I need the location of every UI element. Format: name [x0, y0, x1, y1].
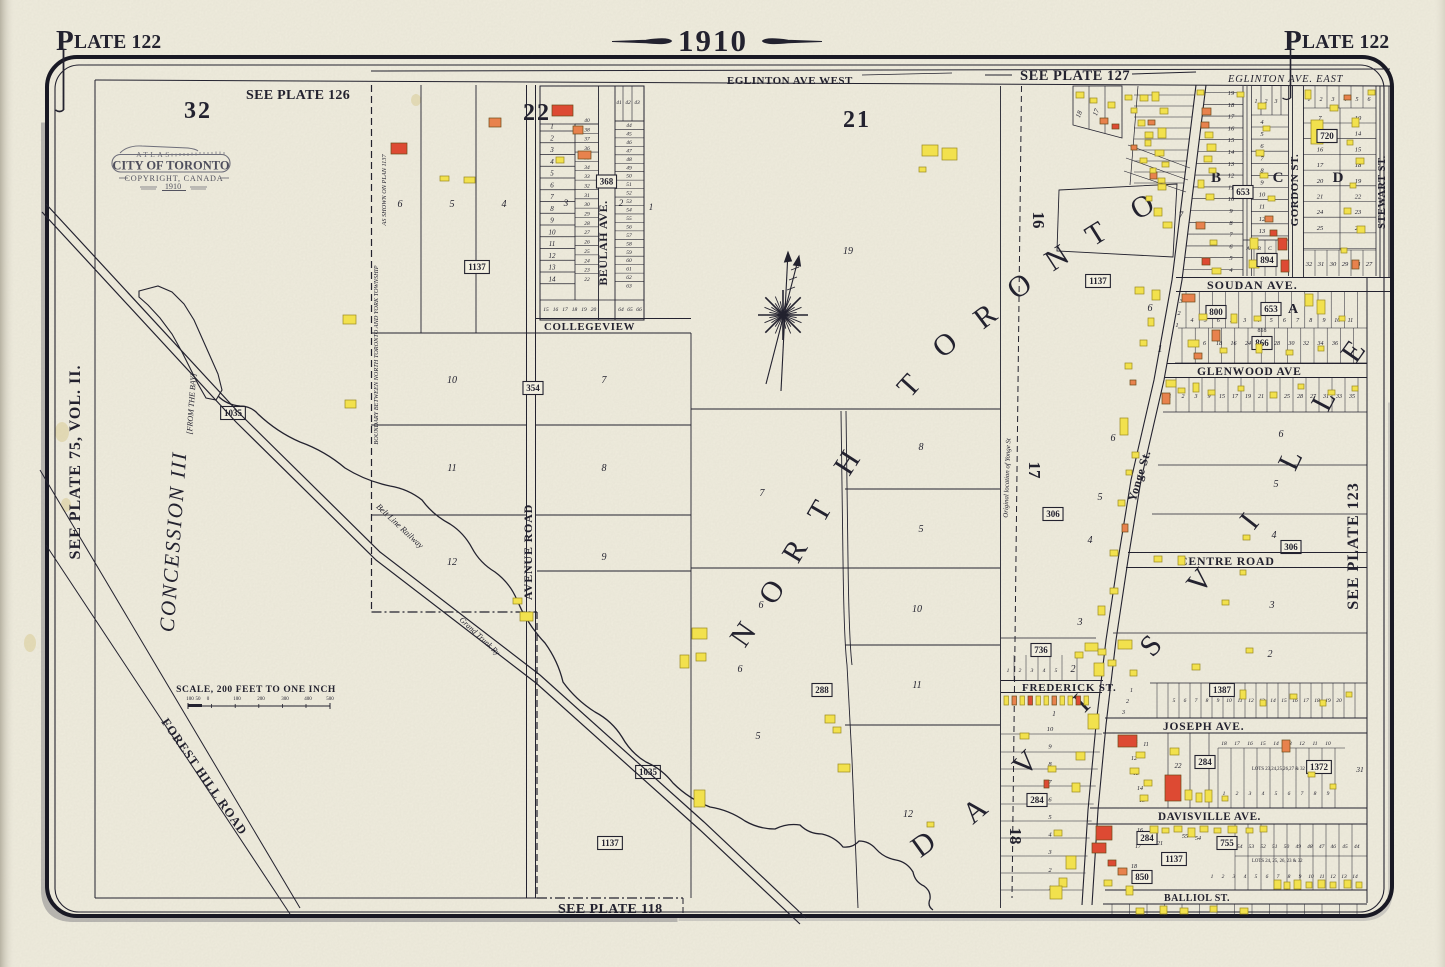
svg-text:46: 46 — [626, 139, 632, 146]
svg-text:44: 44 — [626, 122, 632, 129]
svg-text:EGLINTON AVE WEST: EGLINTON AVE WEST — [727, 75, 853, 87]
svg-text:22: 22 — [523, 100, 551, 126]
svg-text:LATE 122: LATE 122 — [1302, 32, 1389, 53]
svg-text:64: 64 — [618, 306, 624, 313]
svg-text:52: 52 — [626, 191, 632, 197]
svg-text:10: 10 — [912, 604, 922, 615]
svg-text:CITY OF TORONTO: CITY OF TORONTO — [112, 159, 229, 173]
svg-text:6: 6 — [738, 664, 743, 675]
svg-text:50: 50 — [1284, 844, 1290, 850]
svg-text:3: 3 — [549, 146, 554, 154]
svg-text:48: 48 — [626, 156, 632, 163]
svg-text:20: 20 — [1317, 178, 1324, 185]
svg-text:15: 15 — [1228, 137, 1235, 144]
svg-text:16: 16 — [553, 307, 559, 313]
svg-text:5: 5 — [1270, 318, 1273, 324]
svg-text:66: 66 — [636, 307, 642, 313]
svg-text:25: 25 — [1284, 394, 1290, 400]
svg-text:11: 11 — [912, 680, 921, 691]
svg-text:19: 19 — [1245, 394, 1251, 400]
svg-text:15: 15 — [1260, 741, 1266, 747]
svg-text:8: 8 — [1309, 318, 1312, 324]
svg-text:65: 65 — [627, 307, 633, 313]
svg-text:5: 5 — [1275, 791, 1278, 797]
svg-text:A: A — [1245, 246, 1250, 252]
svg-text:5: 5 — [550, 170, 554, 178]
svg-text:27: 27 — [584, 230, 590, 236]
svg-text:5: 5 — [1255, 874, 1258, 880]
svg-text:6: 6 — [1266, 874, 1269, 880]
svg-text:51: 51 — [1272, 844, 1278, 850]
svg-text:1: 1 — [1158, 344, 1163, 355]
svg-text:18: 18 — [1006, 828, 1025, 845]
svg-text:19: 19 — [1228, 90, 1235, 97]
svg-text:14: 14 — [1352, 873, 1358, 880]
svg-text:32: 32 — [1302, 341, 1309, 347]
svg-text:13: 13 — [1228, 161, 1235, 168]
svg-text:300: 300 — [281, 697, 289, 702]
svg-text:21: 21 — [1157, 841, 1163, 847]
svg-text:10: 10 — [1047, 726, 1054, 733]
svg-text:30: 30 — [583, 202, 590, 208]
svg-text:25: 25 — [584, 249, 590, 255]
svg-text:6: 6 — [1279, 429, 1284, 440]
svg-text:6: 6 — [550, 181, 554, 189]
svg-text:LOTS 23,24,25,26,27 & 32: LOTS 23,24,25,26,27 & 32 — [1252, 767, 1306, 772]
svg-text:653: 653 — [1236, 187, 1250, 197]
svg-text:2: 2 — [1268, 649, 1273, 660]
svg-text:17: 17 — [1234, 741, 1240, 747]
svg-text:42: 42 — [625, 99, 631, 106]
svg-text:2: 2 — [1222, 874, 1225, 880]
svg-text:1372: 1372 — [1310, 762, 1329, 772]
svg-text:2: 2 — [1182, 394, 1185, 400]
svg-text:284: 284 — [1140, 833, 1154, 843]
svg-text:850: 850 — [1135, 872, 1149, 882]
svg-text:5: 5 — [1098, 492, 1103, 503]
svg-text:5: 5 — [1173, 698, 1176, 704]
svg-text:16: 16 — [1247, 741, 1253, 747]
svg-text:5: 5 — [1274, 479, 1279, 490]
svg-text:818: 818 — [1258, 328, 1267, 334]
svg-text:EGLINTON AVE. EAST: EGLINTON AVE. EAST — [1227, 74, 1344, 85]
svg-text:11: 11 — [1259, 204, 1265, 211]
svg-text:3: 3 — [1269, 600, 1275, 611]
svg-text:7: 7 — [1195, 698, 1198, 704]
svg-text:GLENWOOD AVE: GLENWOOD AVE — [1197, 365, 1302, 378]
svg-text:720: 720 — [1320, 131, 1334, 141]
svg-text:24: 24 — [1317, 209, 1324, 216]
svg-text:52: 52 — [1260, 844, 1266, 850]
svg-text:3: 3 — [1077, 617, 1083, 628]
svg-text:306: 306 — [1284, 542, 1298, 552]
svg-text:21: 21 — [843, 107, 871, 133]
svg-text:18: 18 — [1314, 698, 1320, 704]
svg-text:6: 6 — [759, 600, 764, 611]
svg-text:47: 47 — [1319, 843, 1325, 850]
svg-text:14: 14 — [1137, 785, 1143, 792]
svg-text:16: 16 — [1228, 125, 1235, 132]
svg-text:1137: 1137 — [1165, 854, 1183, 864]
svg-text:47: 47 — [626, 147, 632, 154]
svg-text:4: 4 — [1191, 317, 1194, 324]
svg-text:BOUNDARY BETWEEN NORTH TORONTO: BOUNDARY BETWEEN NORTH TORONTO AND YORK … — [373, 265, 380, 444]
svg-text:22: 22 — [584, 277, 590, 283]
svg-text:10: 10 — [1325, 741, 1331, 747]
svg-text:31: 31 — [1317, 261, 1325, 268]
svg-text:10: 10 — [1259, 192, 1266, 199]
svg-text:58: 58 — [626, 241, 632, 247]
svg-text:54: 54 — [1195, 835, 1201, 842]
svg-text:AS SHOWN ON PLAN 1137: AS SHOWN ON PLAN 1137 — [381, 154, 388, 227]
svg-text:3: 3 — [1331, 97, 1335, 103]
svg-text:5: 5 — [450, 199, 455, 210]
svg-text:7: 7 — [1301, 791, 1304, 797]
svg-text:54: 54 — [1237, 843, 1243, 850]
svg-text:288: 288 — [815, 685, 829, 695]
svg-text:24: 24 — [1245, 340, 1251, 347]
svg-text:4: 4 — [1272, 530, 1277, 541]
svg-text:21: 21 — [1258, 394, 1264, 400]
svg-text:8: 8 — [919, 442, 924, 453]
svg-text:11: 11 — [1312, 741, 1317, 747]
svg-text:55: 55 — [1182, 834, 1188, 840]
svg-text:49: 49 — [1295, 843, 1301, 850]
svg-text:12: 12 — [549, 252, 557, 260]
svg-text:14: 14 — [1273, 740, 1279, 747]
svg-text:21: 21 — [1317, 194, 1324, 201]
svg-text:45: 45 — [626, 130, 632, 137]
svg-text:18: 18 — [572, 307, 578, 313]
svg-text:32: 32 — [184, 98, 212, 124]
svg-text:8: 8 — [602, 463, 607, 474]
svg-text:SCALE, 200 FEET TO ONE INCH: SCALE, 200 FEET TO ONE INCH — [176, 685, 336, 695]
svg-text:STEWART ST.: STEWART ST. — [1377, 155, 1388, 229]
svg-text:38: 38 — [583, 127, 590, 133]
svg-text:17: 17 — [1232, 394, 1239, 400]
svg-text:736: 736 — [1034, 645, 1048, 655]
svg-text:17: 17 — [1303, 698, 1309, 704]
svg-text:13: 13 — [549, 264, 557, 272]
svg-text:32: 32 — [1305, 261, 1313, 268]
svg-text:6: 6 — [1111, 433, 1116, 444]
svg-text:6: 6 — [1184, 698, 1187, 704]
svg-text:6: 6 — [1148, 303, 1153, 314]
svg-text:16: 16 — [1231, 341, 1237, 347]
svg-text:6: 6 — [1368, 97, 1371, 103]
svg-text:13: 13 — [1259, 228, 1266, 235]
svg-text:17: 17 — [1025, 462, 1044, 480]
svg-text:1: 1 — [1052, 710, 1056, 718]
svg-text:19: 19 — [843, 246, 853, 257]
svg-text:60: 60 — [626, 258, 632, 264]
svg-text:14: 14 — [1355, 131, 1362, 138]
svg-text:2: 2 — [1236, 791, 1239, 797]
svg-text:59: 59 — [626, 250, 632, 256]
svg-text:DAVISVILLE AVE.: DAVISVILLE AVE. — [1158, 811, 1261, 823]
svg-text:23: 23 — [1355, 209, 1362, 216]
svg-text:29: 29 — [584, 212, 590, 218]
svg-text:SEE PLATE 118: SEE PLATE 118 — [558, 902, 663, 917]
svg-text:1: 1 — [649, 202, 654, 212]
svg-text:SOUDAN AVE.: SOUDAN AVE. — [1207, 278, 1298, 292]
svg-text:56: 56 — [626, 224, 632, 230]
svg-text:50: 50 — [196, 697, 202, 702]
svg-text:26: 26 — [584, 240, 590, 246]
svg-text:P: P — [1284, 25, 1302, 57]
svg-text:31: 31 — [583, 193, 590, 199]
svg-text:1: 1 — [1007, 668, 1010, 674]
svg-text:800: 800 — [1209, 307, 1223, 317]
svg-text:12: 12 — [1299, 741, 1305, 747]
svg-text:2: 2 — [1320, 97, 1323, 103]
svg-text:10: 10 — [1226, 698, 1232, 704]
svg-text:7: 7 — [1277, 874, 1280, 880]
svg-text:9: 9 — [1327, 791, 1330, 797]
svg-text:15: 15 — [1219, 394, 1225, 400]
svg-text:5: 5 — [919, 524, 924, 535]
svg-text:12: 12 — [903, 809, 913, 820]
svg-text:9: 9 — [1299, 874, 1302, 880]
svg-text:1: 1 — [1255, 99, 1258, 105]
svg-text:LATE 122: LATE 122 — [74, 32, 161, 53]
svg-text:40: 40 — [584, 117, 590, 124]
svg-text:1: 1 — [1175, 322, 1178, 329]
svg-text:3: 3 — [1194, 394, 1198, 400]
svg-text:17: 17 — [562, 307, 568, 313]
svg-text:COLLEGEVIEW: COLLEGEVIEW — [544, 321, 635, 333]
svg-text:18: 18 — [1131, 864, 1137, 870]
svg-text:18: 18 — [1228, 102, 1235, 109]
svg-text:8: 8 — [1314, 791, 1317, 797]
svg-text:25: 25 — [1317, 225, 1324, 232]
svg-text:63: 63 — [626, 284, 632, 290]
svg-text:53: 53 — [626, 199, 632, 205]
svg-text:400: 400 — [304, 697, 312, 702]
svg-text:20: 20 — [591, 307, 597, 313]
svg-text:7: 7 — [1179, 210, 1184, 220]
svg-text:306: 306 — [1046, 509, 1060, 519]
svg-text:48: 48 — [1307, 843, 1313, 850]
svg-text:3: 3 — [1232, 874, 1236, 880]
svg-text:45: 45 — [1342, 843, 1348, 850]
svg-text:755: 755 — [1220, 838, 1234, 848]
svg-text:29: 29 — [1342, 261, 1349, 268]
svg-text:8: 8 — [1206, 698, 1209, 704]
svg-text:3: 3 — [1121, 710, 1125, 716]
svg-text:17: 17 — [1317, 162, 1324, 169]
svg-text:100: 100 — [233, 697, 241, 702]
svg-text:12: 12 — [1228, 173, 1235, 180]
svg-text:A: A — [1288, 302, 1299, 317]
svg-text:3: 3 — [1242, 318, 1246, 324]
svg-text:6: 6 — [398, 199, 403, 210]
svg-text:15: 15 — [543, 307, 549, 313]
svg-text:33: 33 — [583, 174, 590, 180]
svg-text:6: 6 — [1203, 341, 1206, 347]
svg-text:4: 4 — [1244, 873, 1247, 880]
svg-text:32: 32 — [583, 183, 590, 189]
svg-text:28: 28 — [584, 221, 590, 227]
svg-text:27: 27 — [1366, 261, 1373, 268]
svg-text:SEE PLATE 123: SEE PLATE 123 — [1345, 482, 1362, 609]
svg-text:11: 11 — [447, 463, 456, 474]
svg-text:6: 6 — [1288, 791, 1291, 797]
svg-text:12: 12 — [1330, 874, 1336, 880]
svg-text:24: 24 — [584, 257, 590, 264]
svg-text:9: 9 — [1217, 698, 1220, 704]
svg-text:2: 2 — [619, 198, 624, 208]
svg-text:3: 3 — [1030, 668, 1034, 674]
svg-text:D: D — [1333, 170, 1344, 186]
svg-text:46: 46 — [1331, 843, 1337, 850]
svg-text:51: 51 — [626, 182, 632, 188]
svg-text:50: 50 — [626, 174, 632, 180]
svg-text:1: 1 — [550, 123, 554, 131]
svg-text:20: 20 — [1336, 698, 1342, 704]
svg-text:5: 5 — [1356, 97, 1359, 103]
svg-text:1: 1 — [1211, 874, 1214, 880]
svg-text:BEULAH AVE.: BEULAH AVE. — [596, 200, 610, 285]
svg-text:500: 500 — [326, 697, 334, 702]
svg-text:10: 10 — [549, 228, 557, 236]
svg-text:354: 354 — [526, 383, 540, 393]
svg-text:19: 19 — [581, 307, 587, 313]
svg-text:23: 23 — [584, 268, 590, 274]
svg-text:8: 8 — [1288, 874, 1291, 880]
svg-text:1137: 1137 — [601, 838, 619, 848]
svg-text:BALLIOL ST.: BALLIOL ST. — [1164, 893, 1230, 904]
svg-text:27: 27 — [1310, 394, 1317, 400]
svg-text:C: C — [1268, 246, 1272, 252]
svg-text:3: 3 — [1274, 99, 1278, 105]
svg-text:100: 100 — [186, 697, 194, 702]
svg-text:22: 22 — [1175, 762, 1183, 770]
svg-text:15: 15 — [1281, 698, 1287, 704]
svg-text:53: 53 — [1249, 844, 1255, 850]
svg-text:13: 13 — [1341, 874, 1347, 880]
svg-text:11: 11 — [1143, 742, 1149, 748]
svg-text:12: 12 — [1248, 698, 1254, 704]
svg-text:7: 7 — [550, 193, 554, 201]
svg-text:P: P — [56, 25, 74, 57]
svg-text:17: 17 — [1228, 114, 1235, 121]
svg-text:1910: 1910 — [678, 23, 748, 58]
svg-text:57: 57 — [626, 233, 632, 239]
svg-text:14: 14 — [549, 275, 557, 283]
svg-text:16: 16 — [1029, 212, 1048, 229]
svg-text:30: 30 — [1288, 341, 1295, 347]
svg-text:LOTS 24, 25, 26, 23 & 32: LOTS 24, 25, 26, 23 & 32 — [1252, 859, 1303, 864]
svg-text:368: 368 — [600, 177, 614, 187]
svg-text:28: 28 — [1297, 394, 1303, 400]
svg-text:894: 894 — [1260, 255, 1274, 265]
svg-text:1387: 1387 — [1213, 685, 1232, 695]
svg-text:12: 12 — [447, 557, 457, 568]
svg-text:CENTRE ROAD: CENTRE ROAD — [1179, 554, 1275, 568]
svg-text:14: 14 — [1270, 697, 1276, 704]
svg-text:30: 30 — [1329, 261, 1337, 268]
svg-text:62: 62 — [626, 275, 632, 281]
svg-text:31: 31 — [1355, 765, 1364, 774]
svg-text:3: 3 — [563, 198, 569, 208]
svg-text:2: 2 — [550, 134, 554, 142]
svg-text:AVENUE ROAD: AVENUE ROAD — [521, 504, 535, 600]
svg-text:9: 9 — [550, 217, 554, 225]
svg-text:18: 18 — [1221, 741, 1227, 747]
svg-text:61: 61 — [626, 267, 632, 273]
svg-text:11: 11 — [549, 240, 555, 248]
svg-text:16: 16 — [1317, 146, 1324, 153]
svg-text:5: 5 — [756, 731, 761, 742]
svg-text:4: 4 — [1088, 535, 1093, 546]
svg-text:1137: 1137 — [1089, 276, 1107, 286]
svg-text:9: 9 — [1323, 318, 1326, 324]
svg-text:11: 11 — [1348, 318, 1354, 324]
svg-text:36: 36 — [1331, 341, 1338, 347]
svg-text:200: 200 — [257, 697, 265, 702]
svg-text:34: 34 — [583, 164, 590, 171]
svg-text:10: 10 — [447, 375, 457, 386]
svg-text:43: 43 — [634, 99, 640, 106]
svg-text:11: 11 — [1319, 874, 1324, 880]
svg-text:1910: 1910 — [165, 182, 181, 191]
svg-text:653: 653 — [1264, 304, 1278, 314]
svg-text:15: 15 — [1355, 146, 1362, 153]
svg-text:2: 2 — [1019, 668, 1022, 674]
svg-text:22: 22 — [1355, 194, 1362, 201]
svg-text:35: 35 — [1348, 394, 1355, 400]
svg-text:2: 2 — [1071, 664, 1076, 675]
svg-text:33: 33 — [1335, 394, 1342, 400]
svg-text:4: 4 — [1043, 667, 1046, 674]
svg-text:9: 9 — [602, 552, 607, 563]
svg-text:2: 2 — [1126, 699, 1129, 705]
svg-text:GORDON ST.: GORDON ST. — [1289, 154, 1301, 227]
svg-text:28: 28 — [1274, 341, 1280, 347]
svg-text:6: 6 — [1283, 318, 1286, 324]
svg-text:284: 284 — [1030, 795, 1044, 805]
svg-text:5: 5 — [1055, 668, 1058, 674]
svg-text:37: 37 — [583, 137, 590, 143]
svg-text:284: 284 — [1198, 757, 1212, 767]
svg-text:1: 1 — [1130, 688, 1133, 694]
svg-text:54: 54 — [626, 207, 632, 214]
svg-text:SEE PLATE 127: SEE PLATE 127 — [1020, 68, 1130, 84]
svg-text:4: 4 — [1262, 790, 1265, 797]
svg-text:1137: 1137 — [468, 262, 486, 272]
svg-text:8: 8 — [550, 205, 554, 213]
svg-text:44: 44 — [1354, 843, 1360, 850]
svg-text:14: 14 — [1228, 149, 1235, 156]
svg-text:4: 4 — [550, 158, 554, 166]
svg-text:C: C — [1273, 170, 1284, 186]
svg-text:4: 4 — [502, 199, 507, 210]
svg-text:55: 55 — [626, 216, 632, 222]
svg-text:3: 3 — [1248, 791, 1252, 797]
svg-text:JOSEPH AVE.: JOSEPH AVE. — [1163, 721, 1244, 733]
svg-text:SEE PLATE 126: SEE PLATE 126 — [246, 88, 350, 103]
svg-text:FREDERICK ST.: FREDERICK ST. — [1022, 682, 1117, 694]
svg-text:49: 49 — [626, 164, 632, 171]
svg-text:10: 10 — [1308, 874, 1314, 880]
svg-text:41: 41 — [616, 99, 622, 106]
svg-text:18: 18 — [1216, 341, 1222, 347]
